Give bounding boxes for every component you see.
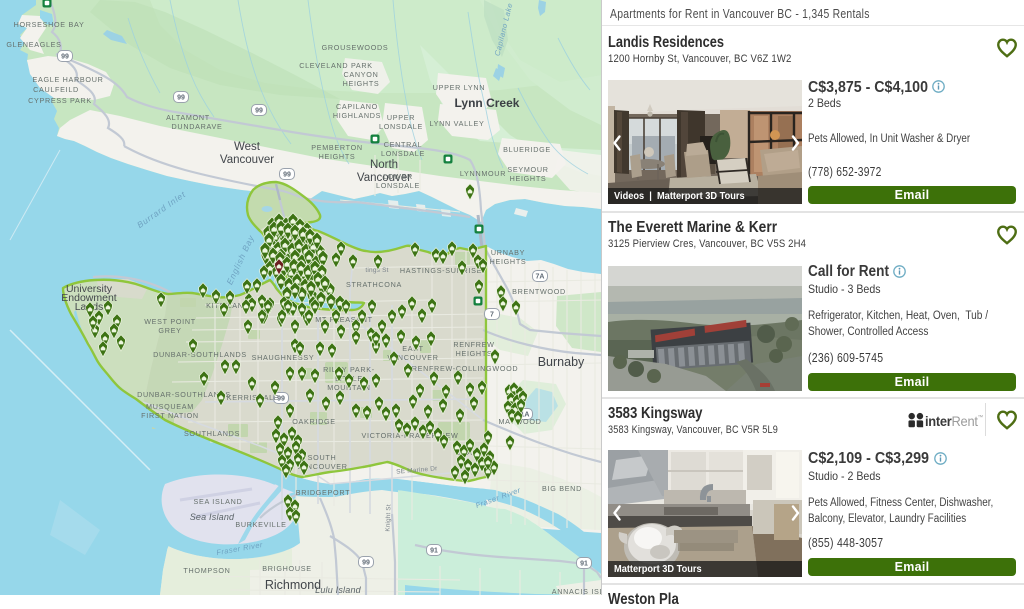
svg-text:STRATHCONA: STRATHCONA (346, 280, 402, 289)
svg-text:LYNNMOUR: LYNNMOUR (460, 169, 506, 178)
svg-text:91: 91 (430, 548, 438, 555)
svg-text:CAPILANO: CAPILANO (336, 102, 378, 111)
svg-text:North: North (370, 159, 398, 171)
svg-text:ANNACIS ISL: ANNACIS ISL (552, 587, 601, 595)
svg-text:THOMPSON: THOMPSON (183, 566, 230, 575)
svg-text:99: 99 (177, 95, 185, 102)
svg-text:SOUTH: SOUTH (308, 453, 337, 462)
svg-text:WEST POINT: WEST POINT (144, 317, 196, 326)
svg-text:West: West (234, 141, 261, 153)
svg-text:RENFREW-COLLINGWOOD: RENFREW-COLLINGWOOD (412, 364, 519, 373)
svg-text:UPPER: UPPER (387, 113, 415, 122)
svg-text:LONSDALE: LONSDALE (376, 181, 420, 190)
svg-text:HIGHLANDS: HIGHLANDS (333, 111, 381, 120)
svg-text:LONSDALE: LONSDALE (381, 149, 425, 158)
svg-text:BRIGHOUSE: BRIGHOUSE (262, 564, 311, 573)
svg-text:BURKEVILLE: BURKEVILLE (235, 520, 286, 529)
svg-text:Knight St: Knight St (385, 504, 393, 532)
svg-text:LONSDALE: LONSDALE (379, 122, 423, 131)
svg-text:PEMBERTON: PEMBERTON (311, 143, 363, 152)
svg-text:BIG BEND: BIG BEND (542, 484, 582, 493)
svg-text:99: 99 (255, 108, 263, 115)
svg-text:DUNDARAVE: DUNDARAVE (172, 122, 223, 131)
svg-text:URNABY: URNABY (491, 248, 525, 257)
svg-text:CENTRAL: CENTRAL (384, 140, 422, 149)
svg-text:HEIGHTS: HEIGHTS (456, 349, 493, 358)
svg-text:OAKRIDGE: OAKRIDGE (292, 417, 336, 426)
svg-text:HORSESHOE BAY: HORSESHOE BAY (14, 20, 85, 29)
svg-text:FIRST NATION: FIRST NATION (141, 411, 199, 420)
svg-text:99: 99 (362, 560, 370, 567)
svg-text:Sea Island: Sea Island (190, 512, 235, 522)
svg-text:HEIGHTS: HEIGHTS (490, 257, 527, 266)
svg-text:LOWER: LOWER (383, 172, 413, 181)
svg-text:99: 99 (283, 172, 291, 179)
svg-text:SEYMOUR: SEYMOUR (507, 165, 548, 174)
svg-text:UPPER LYNN: UPPER LYNN (433, 83, 485, 92)
svg-text:RENFREW: RENFREW (453, 340, 494, 349)
svg-text:HASTINGS-SUNRISE: HASTINGS-SUNRISE (400, 266, 482, 275)
svg-text:91: 91 (580, 561, 588, 568)
svg-text:99: 99 (61, 54, 69, 61)
svg-text:HEIGHTS: HEIGHTS (319, 152, 356, 161)
svg-text:CLEVELAND PARK: CLEVELAND PARK (299, 61, 373, 70)
svg-text:KERRISDALE: KERRISDALE (227, 393, 280, 402)
svg-text:Richmond: Richmond (265, 578, 321, 592)
svg-text:CAULFEILD: CAULFEILD (33, 85, 79, 94)
svg-text:SEA ISLAND: SEA ISLAND (194, 497, 243, 506)
svg-text:BLUERIDGE: BLUERIDGE (503, 145, 551, 154)
svg-text:GREY: GREY (158, 326, 181, 335)
svg-text:Burnaby: Burnaby (538, 355, 585, 369)
svg-text:EAGLE HARBOUR: EAGLE HARBOUR (32, 75, 103, 84)
svg-text:BRIDGEPORT: BRIDGEPORT (296, 488, 350, 497)
svg-text:Lulu Island: Lulu Island (315, 585, 362, 595)
svg-text:HEIGHTS: HEIGHTS (343, 79, 380, 88)
svg-text:SOUTHLANDS: SOUTHLANDS (184, 429, 240, 438)
svg-text:GROUSEWOODS: GROUSEWOODS (322, 43, 389, 52)
svg-text:CYPRESS PARK: CYPRESS PARK (28, 96, 92, 105)
svg-text:7: 7 (490, 312, 494, 319)
svg-text:ALTAMONT: ALTAMONT (166, 113, 210, 122)
svg-text:7A: 7A (536, 274, 545, 281)
svg-text:Lynn Creek: Lynn Creek (455, 96, 520, 110)
svg-text:BRENTWOOD: BRENTWOOD (512, 287, 566, 296)
svg-text:SHAUGHNESSY: SHAUGHNESSY (252, 353, 315, 362)
svg-text:CANYON: CANYON (344, 70, 379, 79)
svg-text:DUNBAR-SOUTHLANDS: DUNBAR-SOUTHLANDS (153, 350, 247, 359)
svg-text:GLENEAGLES: GLENEAGLES (6, 40, 61, 49)
svg-text:HEIGHTS: HEIGHTS (510, 174, 547, 183)
svg-text:LYNN VALLEY: LYNN VALLEY (430, 119, 485, 128)
svg-text:Vancouver: Vancouver (220, 154, 274, 166)
svg-text:MUSQUEAM: MUSQUEAM (146, 402, 194, 411)
